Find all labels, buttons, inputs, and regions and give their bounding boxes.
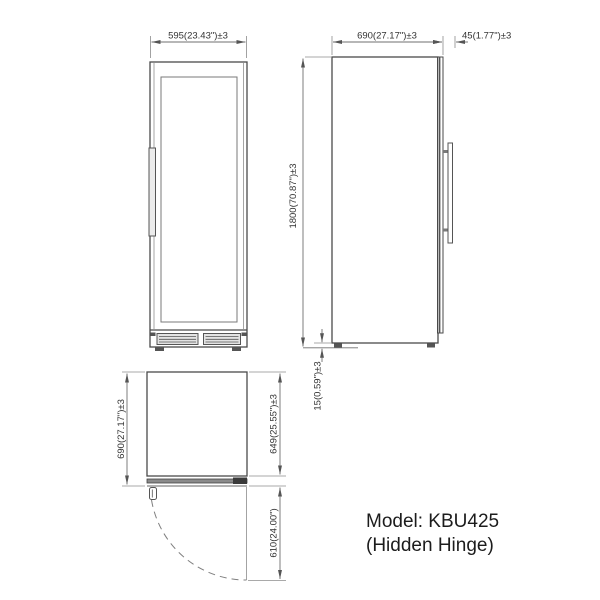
foot-height-dimension: 15(0.59")±3 [313,329,332,411]
door-swing-dimension: 610(24.00") [269,488,281,580]
front-view: 595(23.43")±3 [149,31,247,352]
model-name-text: Model: KBU425 [366,511,499,532]
door-top-profile [147,479,247,483]
dimension-drawing-page: 595(23.43")±3 690(27.17 [0,0,600,600]
door-swing-dimension-label: 610(24.00") [269,508,280,557]
side-view: 690(27.17")±3 45(1.77")±3 1800(70.87")±3 [288,31,511,411]
body-depth-dimension-label: 649(25.55")±3 [269,394,280,454]
front-foot-left [155,347,164,351]
body-depth-dimension: 649(25.55")±3 [249,372,286,486]
height-dimension: 1800(70.87")±3 [288,57,331,347]
door-thickness-dimension: 45(1.77")±3 [430,31,511,43]
hidden-hinge-block [233,478,247,485]
ventilation-grille-right [204,334,241,345]
glass-door-panel [161,77,237,322]
technical-drawing: 595(23.43")±3 690(27.17 [0,0,600,600]
side-depth-dimension: 690(27.17")±3 [332,31,455,56]
door-thickness-dimension-label: 45(1.77")±3 [462,31,511,42]
front-width-dimension-label: 595(23.43")±3 [168,31,228,42]
side-foot-front [427,344,435,348]
side-cabinet [303,57,453,348]
top-depth-dimension-label: 690(27.17")±3 [116,399,127,459]
front-width-dimension: 595(23.43")±3 [151,31,247,59]
front-foot-right [232,347,241,351]
door-handle-front [149,148,156,236]
model-label: Model: KBU425 (Hidden Hinge) [366,511,499,556]
top-depth-dimension: 690(27.17")±3 [116,372,145,486]
side-depth-dimension-label: 690(27.17")±3 [357,31,417,42]
foot-height-dimension-label: 15(0.59")±3 [313,361,324,410]
top-view: 690(27.17")±3 649(25.55")±3 610(24.00") [116,372,286,581]
ventilation-grille-left [157,334,198,345]
door-swing-arc [152,500,247,580]
door-handle-side [443,143,453,243]
front-cabinet [149,62,247,351]
side-foot-back [334,344,342,348]
height-dimension-label: 1800(70.87")±3 [288,163,299,228]
model-hinge-text: (Hidden Hinge) [366,535,494,556]
door-handle-top [150,488,157,500]
